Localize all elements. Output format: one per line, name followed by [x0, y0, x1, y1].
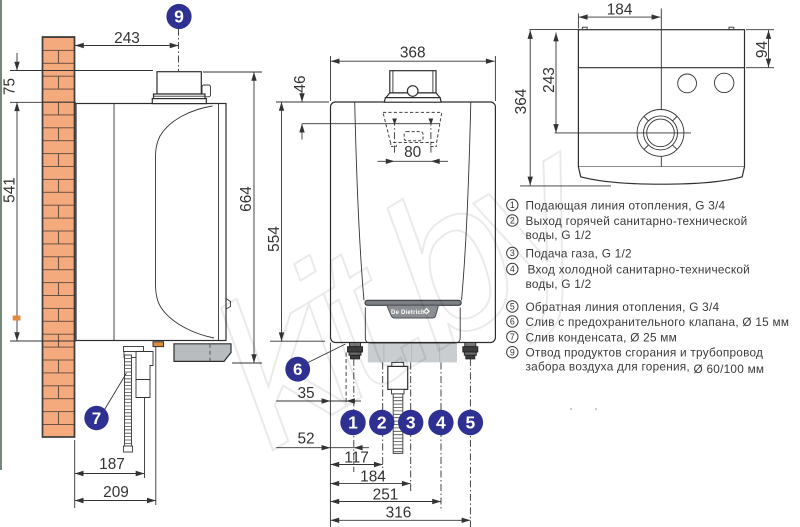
- svg-text:4: 4: [436, 413, 446, 433]
- svg-text:209: 209: [103, 484, 129, 501]
- svg-text:7: 7: [92, 409, 101, 428]
- svg-text:251: 251: [373, 487, 399, 504]
- svg-text:94: 94: [754, 41, 771, 59]
- svg-text:368: 368: [400, 45, 426, 62]
- svg-text:187: 187: [99, 456, 125, 473]
- svg-text:184: 184: [360, 469, 386, 486]
- svg-text:75: 75: [2, 78, 19, 95]
- svg-text:316: 316: [386, 505, 412, 522]
- svg-text:9: 9: [174, 7, 184, 27]
- svg-text:184: 184: [607, 2, 633, 19]
- svg-text:Отвод продуктов сгорания и тру: Отвод продуктов сгорания и трубопровод: [526, 346, 764, 360]
- svg-text:243: 243: [114, 30, 140, 47]
- svg-text:664: 664: [238, 186, 255, 212]
- svg-text:364: 364: [513, 88, 530, 114]
- svg-text:5: 5: [466, 413, 476, 433]
- svg-text:243: 243: [541, 67, 558, 93]
- svg-text:541: 541: [2, 177, 19, 203]
- svg-text:46: 46: [292, 75, 309, 92]
